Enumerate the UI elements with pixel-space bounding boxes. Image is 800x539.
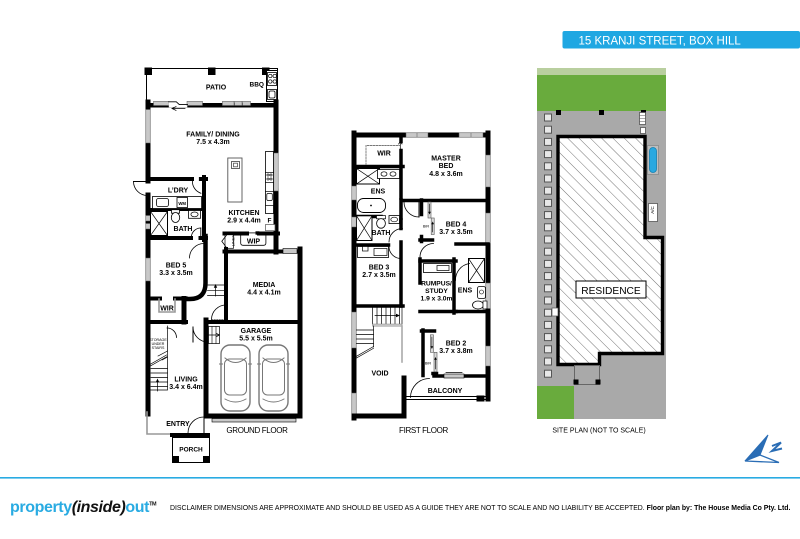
svg-text:FIRST FLOOR: FIRST FLOOR [399,426,448,435]
svg-text:PATIO: PATIO [206,85,227,92]
svg-text:LIVING: LIVING [174,377,198,384]
svg-text:DISCLAIMER DIMENSIONS ARE APPR: DISCLAIMER DIMENSIONS ARE APPROXIMATE AN… [170,505,791,512]
svg-text:4.8 x 3.6m: 4.8 x 3.6m [429,171,462,178]
svg-text:STAIRS: STAIRS [152,346,165,350]
svg-text:BED 2: BED 2 [446,341,467,348]
svg-text:BBQ: BBQ [250,82,264,89]
svg-text:BATH: BATH [174,226,193,233]
svg-text:2.7 x 3.5m: 2.7 x 3.5m [362,272,395,279]
svg-text:KITCHEN: KITCHEN [228,210,259,217]
svg-text:BALCONY: BALCONY [428,388,463,395]
svg-text:F: F [268,218,272,225]
svg-text:MASTER: MASTER [431,156,461,163]
svg-text:RUMPUS/: RUMPUS/ [421,281,452,288]
svg-text:GARAGE: GARAGE [241,328,272,335]
svg-text:A/C: A/C [650,206,655,214]
svg-text:BED 3: BED 3 [369,265,390,272]
svg-text:1.9 x 3.0m: 1.9 x 3.0m [421,296,453,303]
svg-text:ENTRY: ENTRY [166,421,190,428]
svg-text:5.5 x 5.5m: 5.5 x 5.5m [239,336,272,343]
svg-text:PORCH: PORCH [179,447,203,454]
svg-text:ENS: ENS [458,288,473,295]
svg-text:RESIDENCE: RESIDENCE [581,286,641,297]
svg-text:2.9 x 4.4m: 2.9 x 4.4m [227,218,260,225]
svg-text:3.3 x 3.5m: 3.3 x 3.5m [159,270,192,277]
svg-text:STUDY: STUDY [425,288,448,295]
svg-text:4.4 x 4.1m: 4.4 x 4.1m [247,290,280,297]
svg-text:L’DRY: L’DRY [168,188,189,195]
svg-text:BIR: BIR [423,225,430,229]
svg-text:WIR: WIR [160,306,174,313]
svg-text:BED 4: BED 4 [446,222,467,229]
svg-text:15 KRANJI STREET, BOX HILL: 15 KRANJI STREET, BOX HILL [579,36,742,48]
svg-text:WM: WM [178,201,186,206]
svg-text:MEDIA: MEDIA [253,282,276,289]
svg-text:BATH: BATH [372,230,391,237]
svg-text:3.4 x 6.4m: 3.4 x 6.4m [169,384,202,391]
svg-text:ENS: ENS [371,189,386,196]
svg-text:FAMILY/ DINING: FAMILY/ DINING [186,132,240,139]
svg-text:WIR: WIR [377,151,391,158]
svg-text:property(inside)outTM: property(inside)outTM [10,499,157,516]
svg-text:BIR: BIR [425,362,432,366]
svg-text:WIP: WIP [247,238,261,245]
svg-text:3.7 x 3.5m: 3.7 x 3.5m [439,229,472,236]
svg-text:BED: BED [439,163,454,170]
svg-text:7.5 x 4.3m: 7.5 x 4.3m [196,139,229,146]
svg-text:VOID: VOID [371,371,388,378]
svg-text:GROUND FLOOR: GROUND FLOOR [226,426,288,435]
svg-text:3.7 x 3.8m: 3.7 x 3.8m [439,348,472,355]
svg-text:LINEN: LINEN [231,234,236,246]
svg-text:SITE PLAN (NOT TO SCALE): SITE PLAN (NOT TO SCALE) [552,428,645,435]
svg-text:BED 5: BED 5 [166,263,187,270]
